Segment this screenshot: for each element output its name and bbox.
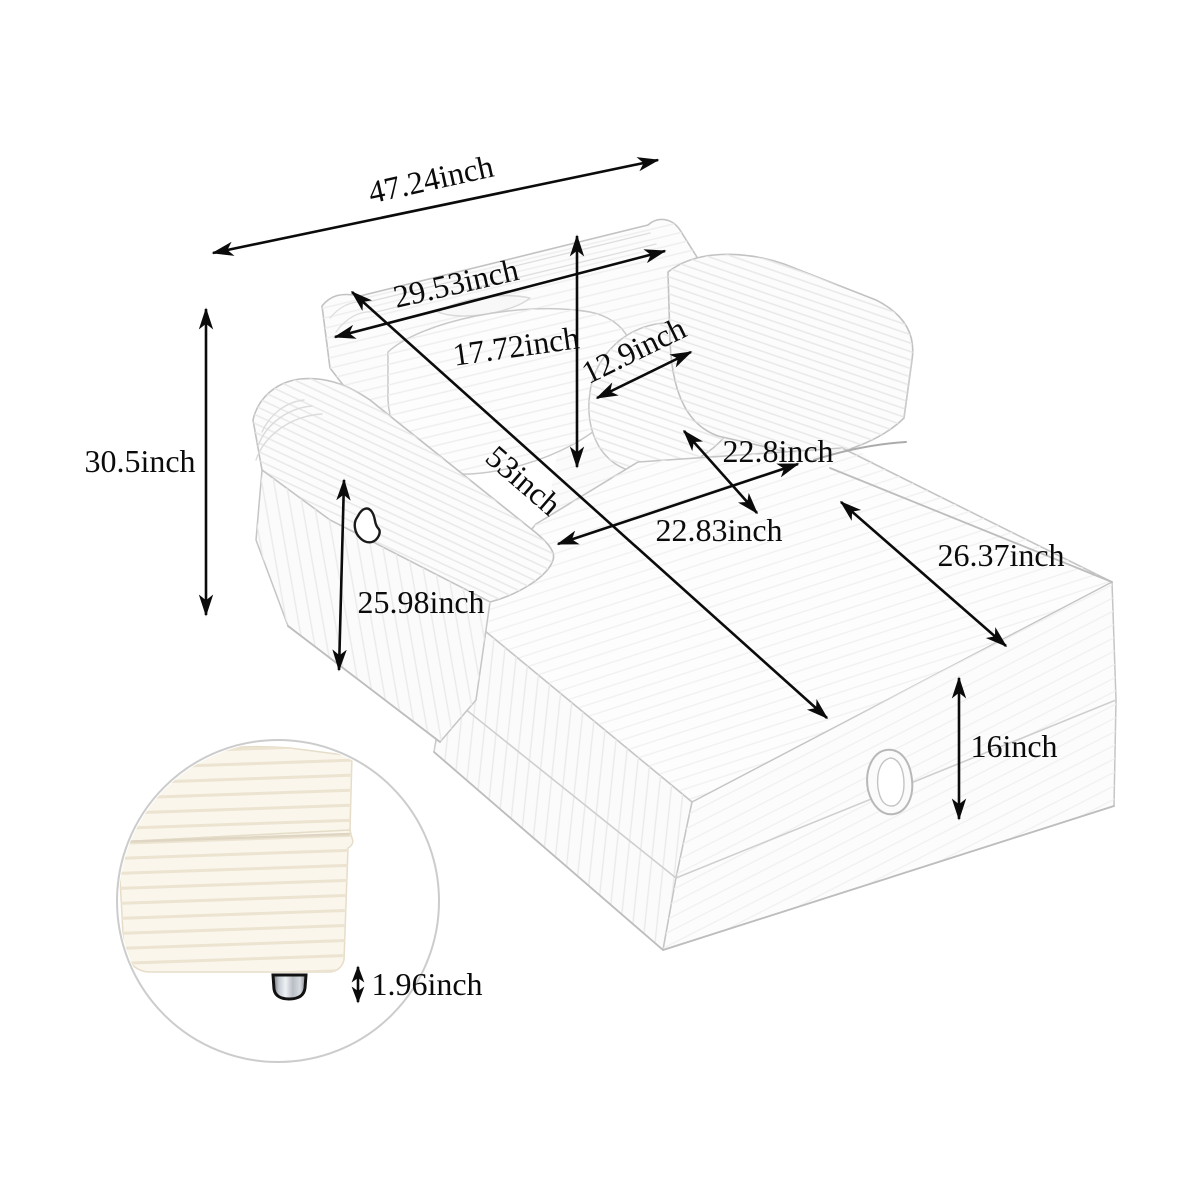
svg-text:16inch: 16inch xyxy=(970,728,1057,764)
svg-text:22.8inch: 22.8inch xyxy=(722,433,833,469)
svg-text:30.5inch: 30.5inch xyxy=(84,443,195,479)
svg-text:26.37inch: 26.37inch xyxy=(937,537,1064,573)
svg-text:25.98inch: 25.98inch xyxy=(357,584,484,620)
svg-text:1.96inch: 1.96inch xyxy=(371,966,482,1002)
svg-text:47.24inch: 47.24inch xyxy=(365,148,497,211)
svg-text:22.83inch: 22.83inch xyxy=(655,512,782,548)
